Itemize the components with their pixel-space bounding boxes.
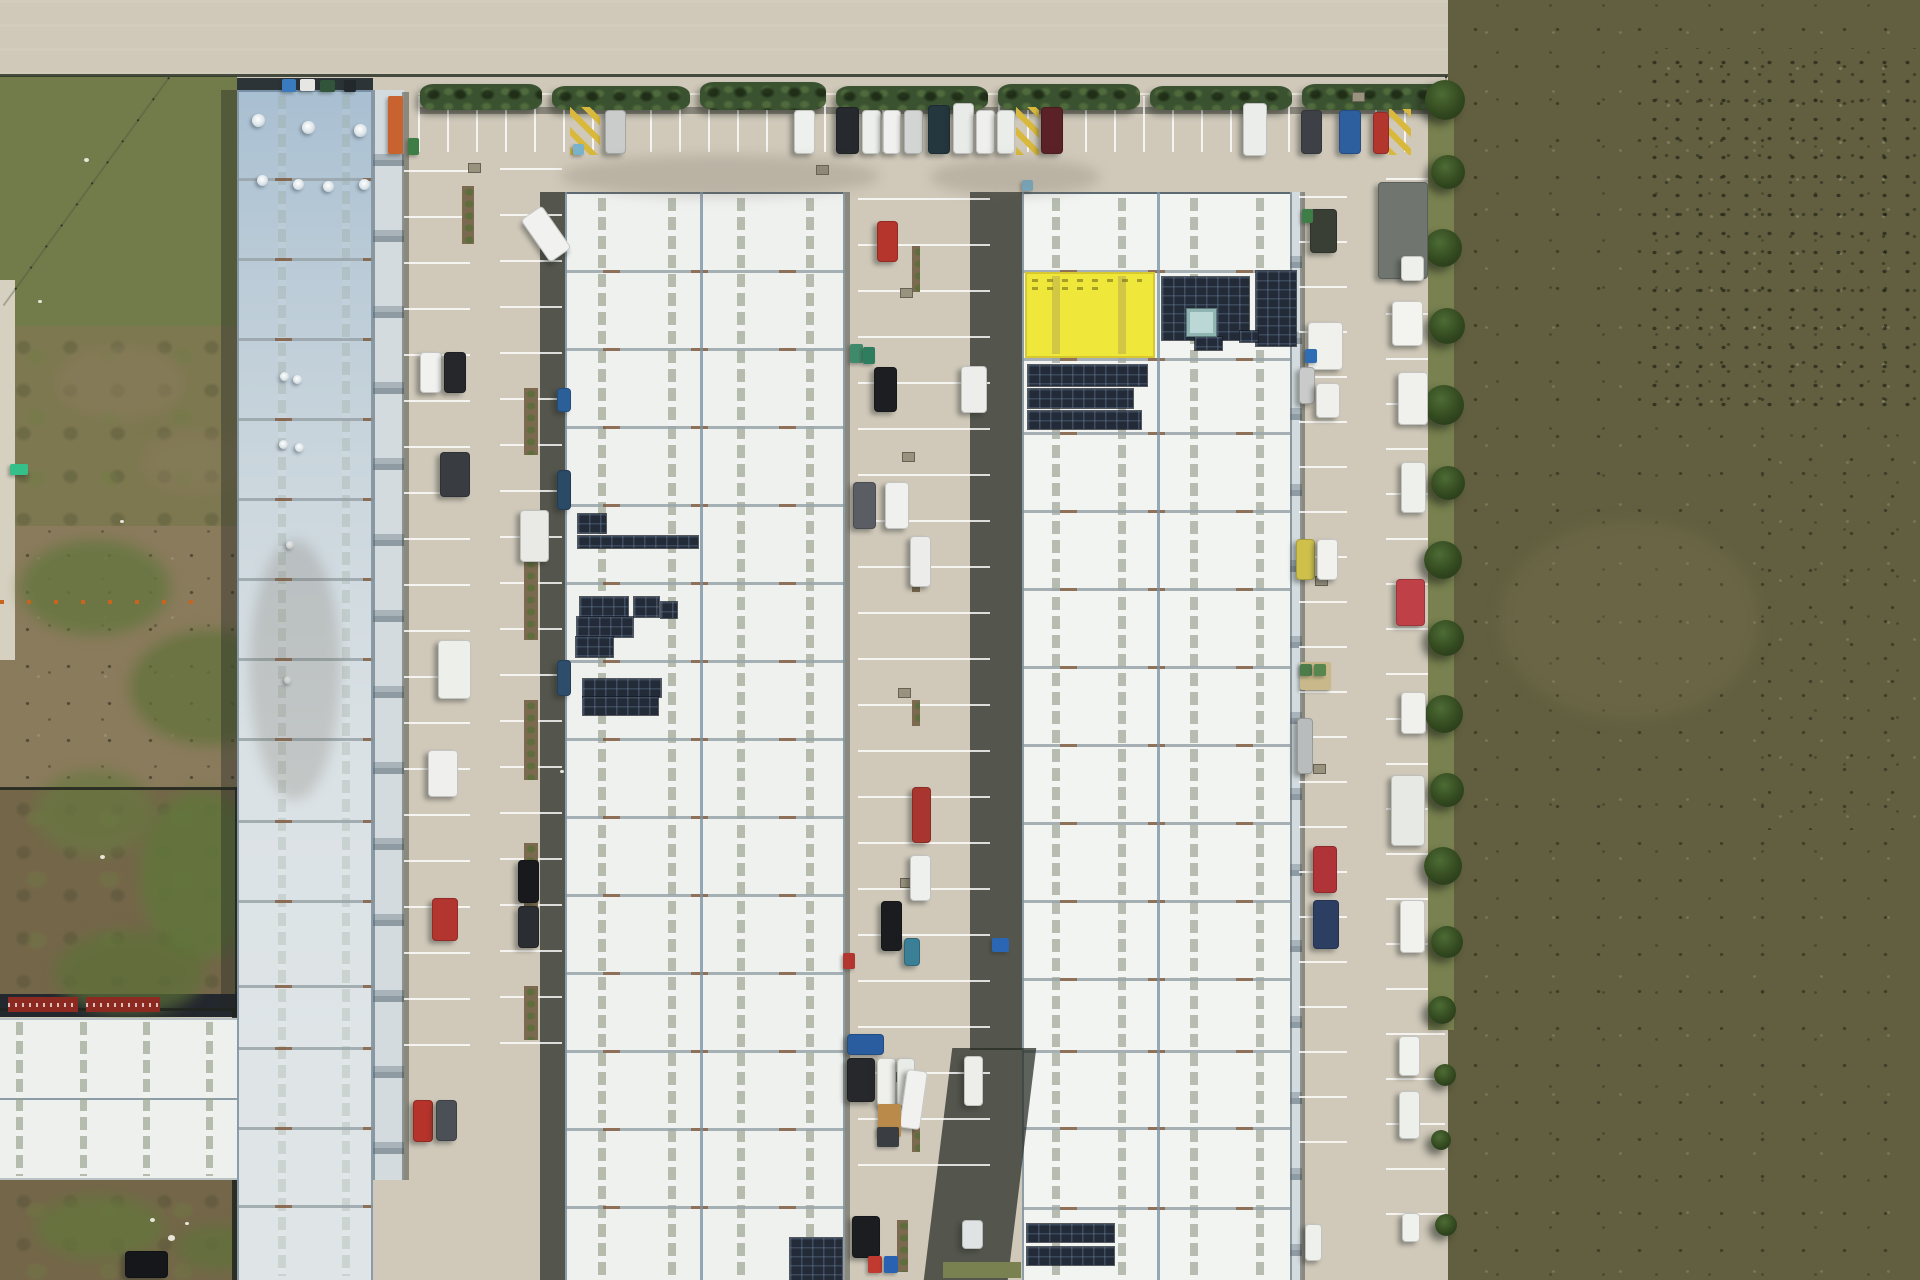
strip-west-bays-line-1 [404,216,470,218]
tree-5 [1431,466,1465,500]
fence-banner-red-2 [86,997,160,1012]
debris-7 [100,855,105,859]
green-box-11 [1314,664,1326,676]
car-54 [1297,718,1313,774]
tree-8 [1425,695,1463,733]
dirt-patch-1 [55,345,185,420]
warehouse-row-center-unit-division-12 [565,1206,845,1209]
car-41 [847,1058,875,1102]
mid-spine-bays-line-11 [858,704,990,706]
car-22 [438,640,471,699]
yellow-marked-roof-unit [1025,272,1155,358]
car-51 [1316,383,1340,418]
strip-east-bays-line-0 [500,168,562,170]
tree-4 [1424,385,1464,425]
garden-strip-3 [524,700,538,780]
trailer-48 [1310,209,1337,253]
warehouse-row-west-skylight-1 [342,96,350,1276]
car-35 [910,536,931,587]
car-14 [1373,112,1389,154]
garden-strip-5 [524,986,538,1040]
mid-spine-bays-line-9 [858,612,990,614]
warehouse-row-center-west-edge [565,192,567,1280]
strip-west-bays-line-0 [404,170,470,172]
roof-vent-10 [295,443,304,452]
right-drive-west-bays-line-9 [1299,601,1347,603]
warehouse-row-center-unit-division-6 [565,738,845,741]
warehouse-row-center-skylight-3 [806,198,814,1276]
right-field-rocky-patch-2 [1742,430,1920,830]
strip-west-bays-line-3 [404,308,470,310]
bushes-road-south [943,1262,1021,1278]
top-grass-strip [0,0,1455,76]
warehouse-row-west-unit-division-2 [237,338,373,341]
yard-fence-top [0,787,240,790]
car-47 [962,1220,983,1249]
roof-vent-1 [302,121,315,134]
car-53 [1317,539,1338,580]
warehouse-row-west-eave-awnings [373,90,404,1180]
warehouse-row-center-unit-division-10 [565,1050,845,1053]
disabled-bay-icon-20 [573,144,584,155]
warehouse-row-center-skylight-1 [668,198,676,1276]
warehouse-row-center-unit-division-7 [565,816,845,819]
garden-corner-b2 [462,186,474,244]
shadow-building-2 [540,192,565,1280]
roof-vent-8 [293,375,302,384]
roof-vent-7 [280,372,289,381]
mid-spine-bays-line-17 [858,980,990,982]
car-10 [1041,107,1063,154]
green-patch-3 [35,770,155,855]
wheelie-bin-green-8 [1302,209,1313,223]
solar-b2-4 [634,597,659,617]
strip-west-bays-line-9 [404,584,470,586]
strip-west-bays-line-12 [404,722,470,724]
car-28 [413,1100,433,1142]
car-25 [518,860,539,903]
warehouse-southwest-skylight-2 [143,1022,150,1176]
no-park-hatch-2 [1016,107,1039,155]
right-drive-west-bays-line-7 [1299,511,1347,513]
warehouse-row-west-unit-division-8 [237,820,373,823]
warehouse-row-west-unit-division-10 [237,985,373,988]
strip-west-bays-line-2 [404,262,470,264]
pavement-drain-2 [1352,92,1365,102]
car-34 [885,482,909,529]
warehouse-row-west-unit-division-12 [237,1127,373,1130]
car-30 [877,221,898,262]
mid-spine-bays-line-0 [858,198,990,200]
car-60 [1392,301,1423,346]
tire-smudge-2 [250,540,340,800]
solar-b2-7 [576,637,613,657]
strip-east-bays-line-19 [500,1042,562,1044]
car-24 [428,750,458,797]
solar-b3-3 [1195,337,1222,350]
solar-b2-1 [578,514,606,533]
hedge-3 [700,82,826,110]
pavement-drain-0 [468,163,481,173]
car-70 [125,1251,168,1278]
strip-east-bays-line-7 [500,490,562,492]
warehouse-row-east-unit-division-12 [1022,1207,1297,1210]
strip-east-bays-line-3 [500,306,562,308]
roof-vent-4 [293,179,304,190]
car-57 [1305,1224,1322,1261]
car-56 [1313,900,1339,949]
car-37 [910,855,931,901]
right-drive-west-bays-line-21 [1299,1141,1347,1143]
rooftop-box-green-16 [320,80,335,92]
solar-b3-8 [1027,1224,1114,1242]
orange-container-13 [388,96,403,154]
right-drive-west-bays-line-6 [1299,466,1347,468]
north-boundary-line [0,74,1448,77]
hedge-1 [420,84,542,110]
hedge-6 [1150,86,1292,110]
car-18 [557,388,571,412]
warehouse-row-center-unit-division-9 [565,972,845,975]
car-17 [444,352,466,393]
car-65 [1391,775,1425,846]
solar-b2-6 [577,617,633,637]
tree-3 [1429,308,1465,344]
tire-smudge-0 [560,155,880,197]
strip-west-bays-line-8 [404,538,470,540]
car-32 [961,366,987,413]
strip-east-bays-line-14 [500,812,562,814]
car-45 [964,1056,983,1106]
wheelie-bin-green-1 [863,347,875,364]
car-63 [1396,579,1425,626]
car-1 [794,110,815,154]
wheelie-bin-blue-4 [884,1256,898,1273]
rooftop-box-white-15 [300,79,315,91]
warehouse-row-west-unit-division-4 [237,498,373,501]
solar-b3-4 [1240,331,1258,342]
car-55 [1313,846,1337,893]
right-drive-west-bays-line-19 [1299,1051,1347,1053]
car-69 [1402,1213,1420,1242]
car-21 [520,510,549,562]
roof-vent-6 [359,179,370,190]
warehouse-row-center-unit-division-3 [565,504,845,507]
right-drive-west-bays-line-17 [1299,961,1347,963]
warehouse-row-east-unit-division-7 [1022,822,1297,825]
pavement-drain-5 [898,688,911,698]
wheelie-bin-red-3 [868,1256,882,1273]
car-20 [557,470,571,510]
warehouse-row-center-skylight-2 [737,198,745,1276]
warehouse-row-west-unit-division-13 [237,1205,373,1208]
warehouse-row-west-unit-division-1 [237,258,373,261]
solar-b2-3 [580,597,628,617]
left-field-green [0,76,237,326]
warehouse-row-center-unit-division-11 [565,1128,845,1131]
car-12 [1301,110,1322,154]
strip-west-bays-line-18 [404,998,470,1000]
warehouse-southwest-skylight-1 [80,1022,87,1176]
strip-east-bays-line-4 [500,352,562,354]
car-64 [1401,692,1426,734]
warehouse-row-center-unit-division-0 [565,270,845,273]
warehouse-row-east-unit-division-3 [1022,510,1297,513]
mid-spine-bays-line-12 [858,750,990,752]
mid-spine-bays-line-18 [858,1026,990,1028]
warehouse-row-west-unit-division-11 [237,1047,373,1050]
warehouse-row-east-unit-division-2 [1022,432,1297,435]
right-drive-east-bays-line-19 [1386,1033,1445,1035]
car-33 [853,482,876,529]
pavement-drain-4 [902,452,915,462]
car-7 [953,103,974,154]
yellow-marked-roof-unit-markings-1 [1032,287,1102,290]
warehouse-row-west-unit-division-3 [237,418,373,421]
warehouse-row-east-unit-division-11 [1022,1127,1297,1130]
garden-spine-3 [912,700,920,726]
warehouse-row-east-ridge-0 [1157,192,1160,1280]
warehouse-row-center-unit-division-8 [565,894,845,897]
warehouse-row-center-unit-division-4 [565,582,845,585]
mid-spine-bays-line-10 [858,658,990,660]
pale-dirt-right-field [1500,520,1760,720]
pavement-drain-9 [1313,764,1326,774]
yellow-marked-roof-unit-skylight-ghost-1 [1118,276,1126,354]
teal-marker-18 [10,464,28,475]
tree-9 [1430,773,1464,807]
fence-banner-red-1 [8,997,78,1012]
car-8 [976,110,995,154]
car-29 [436,1100,457,1141]
car-16 [420,352,442,393]
rooftop-box-dark-17 [344,80,356,92]
strip-west-bays-line-14 [404,814,470,816]
car-36 [912,787,931,843]
right-drive-west-bays-line-18 [1299,1006,1347,1008]
rv-marking-blue-19 [1305,349,1317,363]
garden-strip-2 [524,558,538,640]
tree-6 [1424,541,1462,579]
debris-4 [150,1218,155,1222]
roof-vent-0 [252,114,265,127]
car-68 [1399,1091,1420,1139]
roof-vent-5 [323,181,334,192]
right-drive-west-bays-line-11 [1299,691,1347,693]
right-drive-west-bays-line-5 [1299,421,1347,423]
car-4 [883,110,901,154]
car-31 [874,367,897,412]
tree-12 [1428,996,1456,1024]
warehouse-row-center-skylight-0 [598,198,606,1276]
tree-7 [1428,620,1464,656]
rooftop-box-blue-14 [282,79,296,92]
warehouse-row-east-unit-division-10 [1022,1050,1297,1053]
wheelie-bin-blue-5 [992,938,1009,952]
car-40 [847,1034,884,1055]
right-drive-west-bays-line-14 [1299,826,1347,828]
tree-14 [1431,1130,1451,1150]
solar-b2-5 [661,602,677,618]
mid-spine-bays-line-7 [858,520,990,522]
wheelie-bin-green-0 [850,344,863,363]
car-61 [1398,372,1428,425]
tree-0 [1425,80,1465,120]
left-cone-line [0,600,205,604]
car-5 [904,110,923,154]
truck-cab-59 [1401,256,1424,281]
car-19 [440,452,470,497]
garden-road-south [897,1220,908,1272]
car-38 [881,901,902,951]
solar-b3-6 [1028,389,1133,408]
mid-spine-bays-line-16 [858,934,990,936]
mid-spine-bays-line-21 [858,1164,990,1166]
right-drive-east-bays-line-22 [1386,1168,1445,1170]
solar-b3-5 [1028,365,1147,386]
car-2 [836,107,859,154]
roof-vent-2 [354,124,367,137]
warehouse-row-west-unit-division-9 [237,900,373,903]
warehouse-row-west-west-edge [237,90,239,1280]
car-66 [1400,900,1425,953]
garden-spine-1 [912,246,920,292]
solar-b2-10 [790,1238,842,1280]
roof-vent-9 [279,440,288,449]
strip-west-bays-line-6 [404,446,470,448]
strip-west-bays-line-19 [404,1044,470,1046]
rooftop-access-box [1187,309,1216,336]
solar-b3-9 [1027,1247,1114,1265]
warehouse-row-center-unit-division-2 [565,426,845,429]
dark-crate-7 [877,1127,899,1147]
solar-b2-2 [578,536,698,548]
car-62 [1401,462,1426,513]
tree-2 [1424,229,1462,267]
wheelie-bin-red-2 [843,953,855,969]
solar-b2-9 [583,697,658,715]
shadow-building-1 [221,90,237,1010]
right-drive-west-bays-line-2 [1299,286,1347,288]
aerial-photo-stage [0,0,1920,1280]
car-0 [605,110,626,154]
right-drive-west-bays-line-13 [1299,781,1347,783]
car-3 [862,110,881,154]
car-26 [518,906,539,948]
debris-0 [84,158,89,162]
car-50 [1299,367,1315,404]
pavement-drain-3 [900,288,913,298]
mid-spine-bays-line-3 [858,336,990,338]
mid-spine-bays-line-2 [858,290,990,292]
car-27 [432,898,458,941]
shadow-eave-b1 [402,92,409,1180]
warehouse-row-center-ridge-0 [700,192,703,1280]
warehouse-southwest-skylight-0 [16,1022,23,1176]
right-drive-west-bays-line-0 [1299,196,1347,198]
strip-east-bays-line-17 [500,950,562,952]
warehouse-row-east-unit-division-6 [1022,744,1297,747]
strip-west-bays-line-10 [404,630,470,632]
car-9 [997,110,1015,154]
debris-3 [168,1235,175,1241]
tree-15 [1435,1214,1457,1236]
solar-b3-2 [1256,271,1296,346]
green-patch-1 [20,540,170,635]
car-39 [904,938,920,966]
yellow-marked-roof-unit-markings-0 [1032,279,1142,282]
warehouse-row-east-unit-division-8 [1022,900,1297,903]
garden-strip-1 [524,388,538,455]
solar-b3-7 [1028,411,1141,429]
car-42 [877,1058,896,1106]
warehouse-row-east-unit-division-4 [1022,588,1297,591]
mid-spine-bays-line-5 [858,428,990,430]
car-52 [1296,539,1315,580]
car-23 [557,660,571,696]
strip-west-bays-line-5 [404,400,470,402]
top-row-bay-separators-line-25 [1143,96,1145,152]
car-13 [1339,110,1361,154]
warehouse-row-east-unit-division-5 [1022,666,1297,669]
right-drive-west-bays-line-10 [1299,646,1347,648]
right-field-rocky-patch [1640,48,1920,418]
no-park-hatch-3 [1389,109,1411,155]
right-drive-west-bays-line-20 [1299,1096,1347,1098]
wheelie-bin-green-12 [408,138,419,155]
strip-west-bays-line-15 [404,860,470,862]
car-67 [1399,1036,1420,1076]
green-box-10 [1300,664,1312,676]
car-6 [928,105,950,154]
warehouse-row-east-unit-division-1 [1022,358,1297,361]
shadow-building-3 [970,192,1022,1050]
solar-b2-8 [583,679,661,697]
car-11 [1243,103,1267,156]
tree-10 [1424,847,1462,885]
strip-west-bays-line-17 [404,952,470,954]
warehouse-row-center-unit-division-1 [565,348,845,351]
warehouse-southwest-skylight-3 [206,1022,213,1176]
tree-13 [1434,1064,1456,1086]
warehouse-row-east-unit-division-9 [1022,978,1297,981]
warehouse-row-center-unit-division-5 [565,660,845,663]
warehouse-row-center [565,192,845,1280]
tree-1 [1431,155,1465,189]
tree-11 [1431,926,1463,958]
roof-vent-3 [257,175,268,186]
car-46 [852,1216,880,1258]
tire-smudge-1 [930,158,1100,196]
mid-spine-bays-line-6 [858,474,990,476]
strip-east-bays-line-11 [500,674,562,676]
